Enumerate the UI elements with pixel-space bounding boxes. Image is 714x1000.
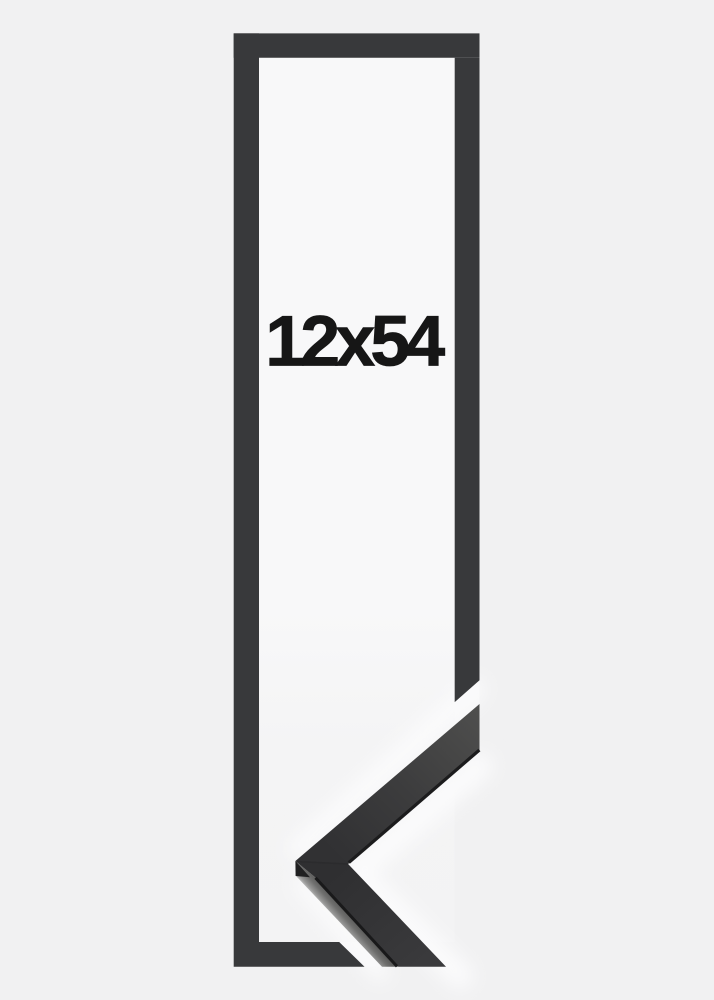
svg-text:12x54: 12x54 bbox=[265, 301, 445, 381]
